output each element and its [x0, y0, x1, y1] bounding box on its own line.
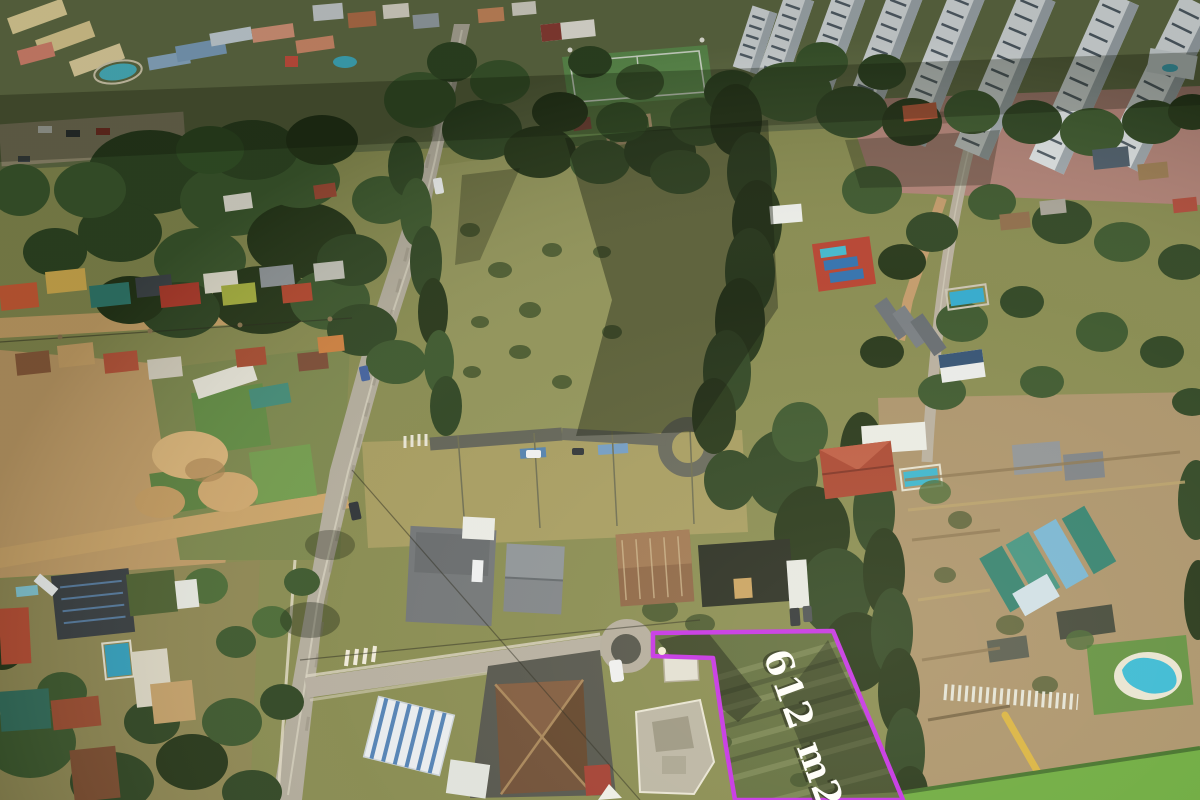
aerial-drone-photo: 612 m2 612 m2: [0, 0, 1200, 800]
photo-light-overlay: [0, 0, 1200, 800]
